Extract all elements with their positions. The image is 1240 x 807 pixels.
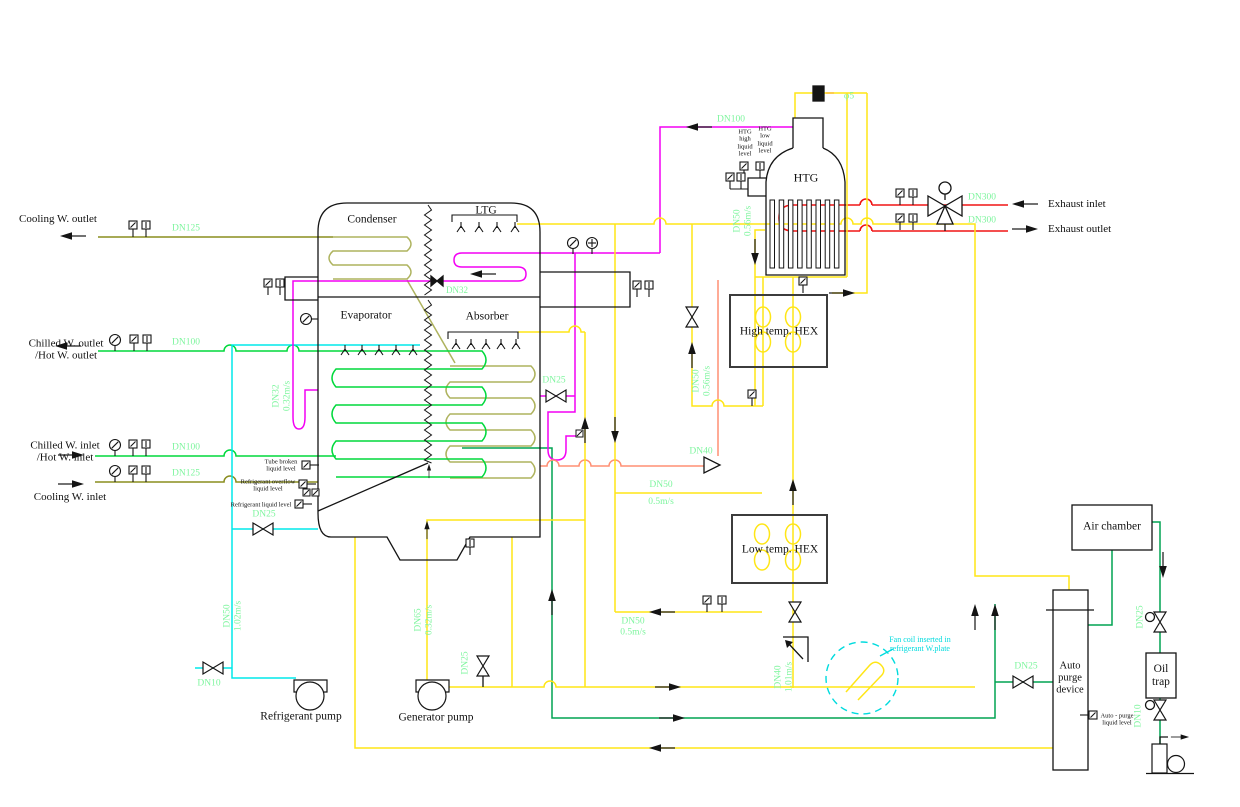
refrigerant-pipes — [195, 345, 420, 678]
chilled-water-pipes — [95, 345, 336, 456]
valve-dn25-absorber — [546, 390, 566, 402]
purge-pipes — [462, 448, 1160, 744]
phi5-orifice — [813, 86, 824, 101]
refrigerant-level-tap — [295, 500, 312, 508]
solution-pipes — [355, 93, 1069, 748]
auto-purge-device-box — [1046, 590, 1094, 770]
generator-pump-symbol — [416, 680, 449, 710]
low-temp-hex-box — [732, 515, 827, 583]
pipes-layer — [95, 93, 1160, 748]
piping-diagram-canvas — [0, 0, 1240, 807]
gauge-cross-icon — [587, 238, 598, 255]
tube-broken-level-tap — [302, 461, 319, 469]
valve-dn25-oil — [1146, 612, 1167, 632]
pressure-gauge-icon — [568, 238, 579, 255]
equipment-layer — [55, 86, 1194, 774]
valve-dn50-htg-feed — [686, 307, 698, 327]
air-chamber-box — [1072, 505, 1152, 550]
valve-dn25-generator — [477, 656, 489, 687]
valve-dn10-oil — [1146, 700, 1167, 720]
fan-coil-circle — [826, 642, 898, 714]
valve-dn25-refrigerant — [253, 523, 273, 535]
valve-dn10-refrigerant — [203, 662, 223, 674]
fan-coil-symbol — [846, 662, 884, 700]
valve-dn25-purge — [1013, 676, 1033, 688]
refrigerant-pump-symbol — [294, 680, 327, 710]
valve-dn32-condensate — [431, 276, 443, 286]
evaporator-gauge-icon — [301, 314, 319, 325]
high-temp-hex-box — [730, 295, 827, 367]
thermometer-chilled-inlet-icon — [110, 440, 121, 457]
overflow-level-tap — [299, 480, 316, 488]
auto-purge-level-tap — [1080, 711, 1097, 719]
vacuum-pump-symbol — [1146, 737, 1194, 774]
thermometer-cooling-inlet-icon — [110, 466, 121, 483]
thermometer-chilled-outlet-icon — [110, 335, 121, 352]
drain-funnel — [704, 457, 720, 473]
htg-vessel — [730, 86, 845, 275]
exhaust-pipes — [779, 199, 1008, 231]
valve-dn40-solution — [789, 602, 801, 622]
check-valve — [783, 637, 808, 662]
oil-trap-box — [1146, 653, 1176, 698]
diagram-stage: Cooling W. outletChilled W. outlet /Hot … — [0, 0, 1240, 807]
